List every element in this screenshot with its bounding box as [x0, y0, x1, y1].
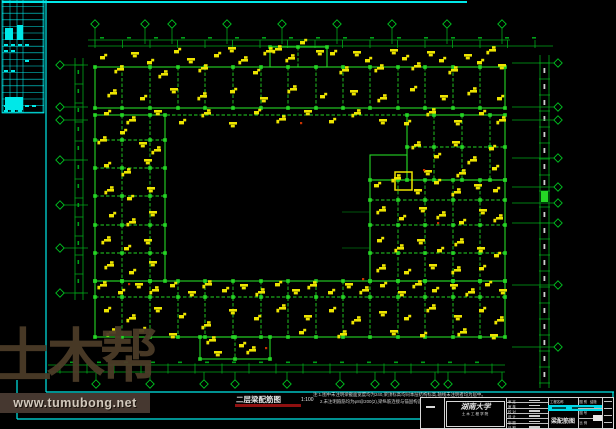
watermark-url-text: www.tumubong.net: [13, 396, 137, 410]
far-mark: [604, 422, 612, 423]
far-mark: [604, 401, 612, 402]
logo-line2: 土木工程学院: [447, 412, 504, 417]
far-mark: [604, 408, 612, 409]
signature-blob: [529, 405, 540, 407]
signature-rows: 审 定 审 核 校 对 设 计 制 图 日 期: [506, 398, 548, 428]
watermark-logo: 土木帮: [0, 328, 153, 386]
red-marks: [128, 122, 439, 349]
far-column: [602, 398, 615, 428]
signature-blob: [529, 400, 540, 402]
beam-annotations: [97, 39, 507, 357]
design-institute-logo: 湖南大学 土木工程学院: [446, 401, 505, 427]
column-markers: [93, 45, 507, 361]
signature-blob: [529, 415, 540, 417]
signature-blob: [529, 421, 540, 423]
project-name-label: 工程名称: [550, 399, 564, 404]
row-label: 图 号: [580, 410, 588, 415]
sheet-info-rows: 图 别结施 图 号 比 例: [578, 398, 602, 428]
row-label: 日 期: [508, 425, 516, 429]
signature-strip: [2, 0, 44, 113]
row-value: 结施: [590, 399, 597, 404]
highlight-mark: [552, 407, 566, 409]
title-block: 湖南大学 土木工程学院 审 定 审 核 校 对 设 计 制 图 日 期 工程名称…: [420, 397, 614, 429]
drawing-scale: 1:100: [301, 397, 314, 403]
logo-line1: 湖南大学: [447, 402, 504, 412]
titleblock-divider: [444, 398, 445, 428]
signature-blob: [529, 410, 540, 412]
row-label: 比 例: [580, 420, 588, 425]
far-mark: [604, 415, 612, 416]
titleblock-mark: [426, 406, 435, 408]
row-label: 图 别: [580, 399, 588, 404]
cad-sheet: 土木帮 www.tumubong.net 二层梁配筋图 1:100 注:1.图中…: [0, 0, 616, 429]
drawing-name-cell: 梁配筋图: [548, 411, 578, 429]
stamp-mark: [593, 415, 602, 421]
signature-blob: [529, 426, 540, 428]
watermark-url-bar: www.tumubong.net: [0, 393, 150, 413]
title-underline: [235, 404, 301, 407]
